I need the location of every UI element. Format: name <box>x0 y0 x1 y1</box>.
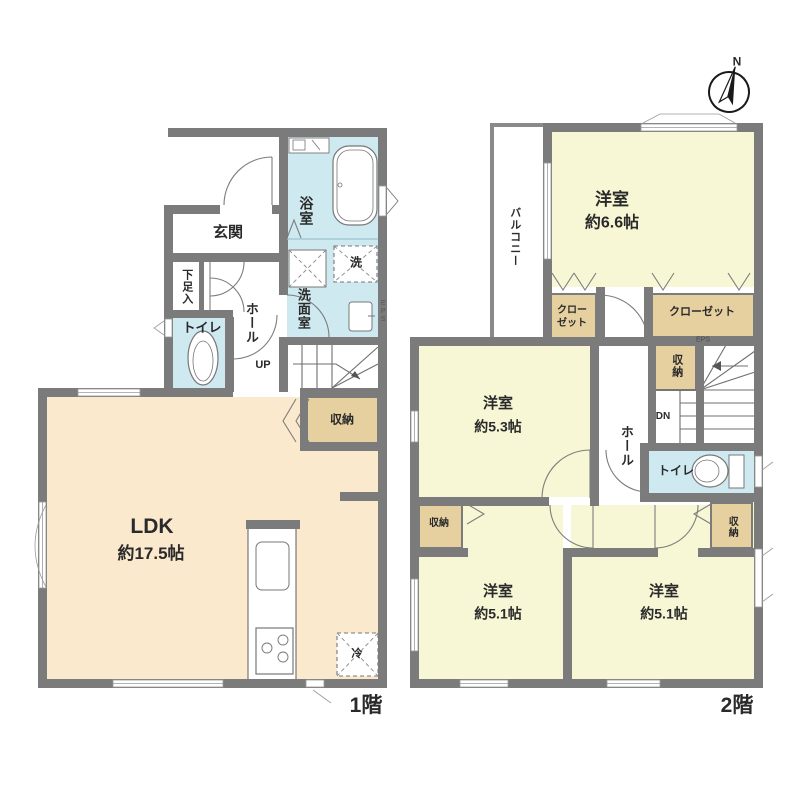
floorplan-canvas: 玄関 下足入 トイレ ホール 浴室 洗面室 洗 UP 収納 LDK 約17.5帖… <box>0 0 800 800</box>
bathroom-label: 浴室 <box>299 196 314 226</box>
shoe-storage-label: 下足入 <box>180 269 192 305</box>
front-door <box>224 157 272 205</box>
room51b-name-label: 洋室 <box>649 584 679 600</box>
vanity-box <box>289 250 326 287</box>
toilet-window-tick <box>154 321 164 335</box>
storage-stairs-label: 収納 <box>670 354 682 378</box>
toilet-fixture-2f <box>692 455 744 488</box>
room66-name-label: 洋室 <box>595 191 629 209</box>
shaft-2f-label: EPS <box>696 336 710 343</box>
compass-icon <box>705 62 755 116</box>
room53-name-label: 洋室 <box>483 396 513 412</box>
room66-size-label: 約6.6帖 <box>585 216 639 233</box>
toilet-1f-label: トイレ <box>182 321 221 335</box>
room51b-size-label: 約5.1帖 <box>640 607 687 622</box>
ldk-size-label: 約17.5帖 <box>117 545 184 563</box>
storage-1f-label: 収納 <box>330 414 354 427</box>
stairs-up-label: UP <box>255 360 270 372</box>
storage-left-label: 収納 <box>429 519 449 530</box>
bay-window-top <box>643 114 735 123</box>
kitchen-counter <box>248 528 296 680</box>
shaft-1f-label: EPS <box>379 300 386 324</box>
room51a-size-label: 約5.1帖 <box>474 607 521 622</box>
hall-2f-label: ホール <box>619 425 633 467</box>
fridge-label: 冷 <box>352 649 363 661</box>
stairs-down-label: DN <box>656 412 670 423</box>
room53-size-label: 約5.3帖 <box>474 420 521 435</box>
ldk-door-tick <box>313 690 331 703</box>
hall-1f-label: ホール <box>244 302 258 344</box>
window-ticks-right <box>762 462 773 602</box>
bath-counter <box>289 138 329 153</box>
floorplan-drawing <box>0 0 800 800</box>
balcony-label: バルコニー <box>508 207 520 267</box>
room51a-name-label: 洋室 <box>483 584 513 600</box>
toilet-fixture-1f <box>188 331 218 385</box>
stairs-up-1f <box>293 345 378 388</box>
water-heater <box>349 302 375 331</box>
toilet-2f-label: トイレ <box>658 465 694 478</box>
closet-small-label-2: ゼット <box>557 319 587 330</box>
floor1-title: 1階 <box>350 695 383 717</box>
floor1-room-fills <box>47 136 378 679</box>
bath-window-vent <box>387 188 398 214</box>
floor2-plan <box>410 114 773 688</box>
bathtub-icon <box>333 146 377 225</box>
room66-door <box>600 295 648 343</box>
entrance-hall-double-door <box>210 262 244 312</box>
storage-right-label: 収納 <box>726 516 737 538</box>
ldk-name-label: LDK <box>130 516 173 538</box>
floor2-title: 2階 <box>721 695 754 717</box>
closet-small-label-1: クロー <box>557 306 587 317</box>
entrance-label: 玄関 <box>213 225 243 241</box>
laundry-label: 洗 <box>350 257 362 270</box>
washroom-label: 洗面室 <box>296 288 310 330</box>
closet-large-label: クローゼット <box>669 307 735 319</box>
compass-north-label: N <box>733 56 742 69</box>
